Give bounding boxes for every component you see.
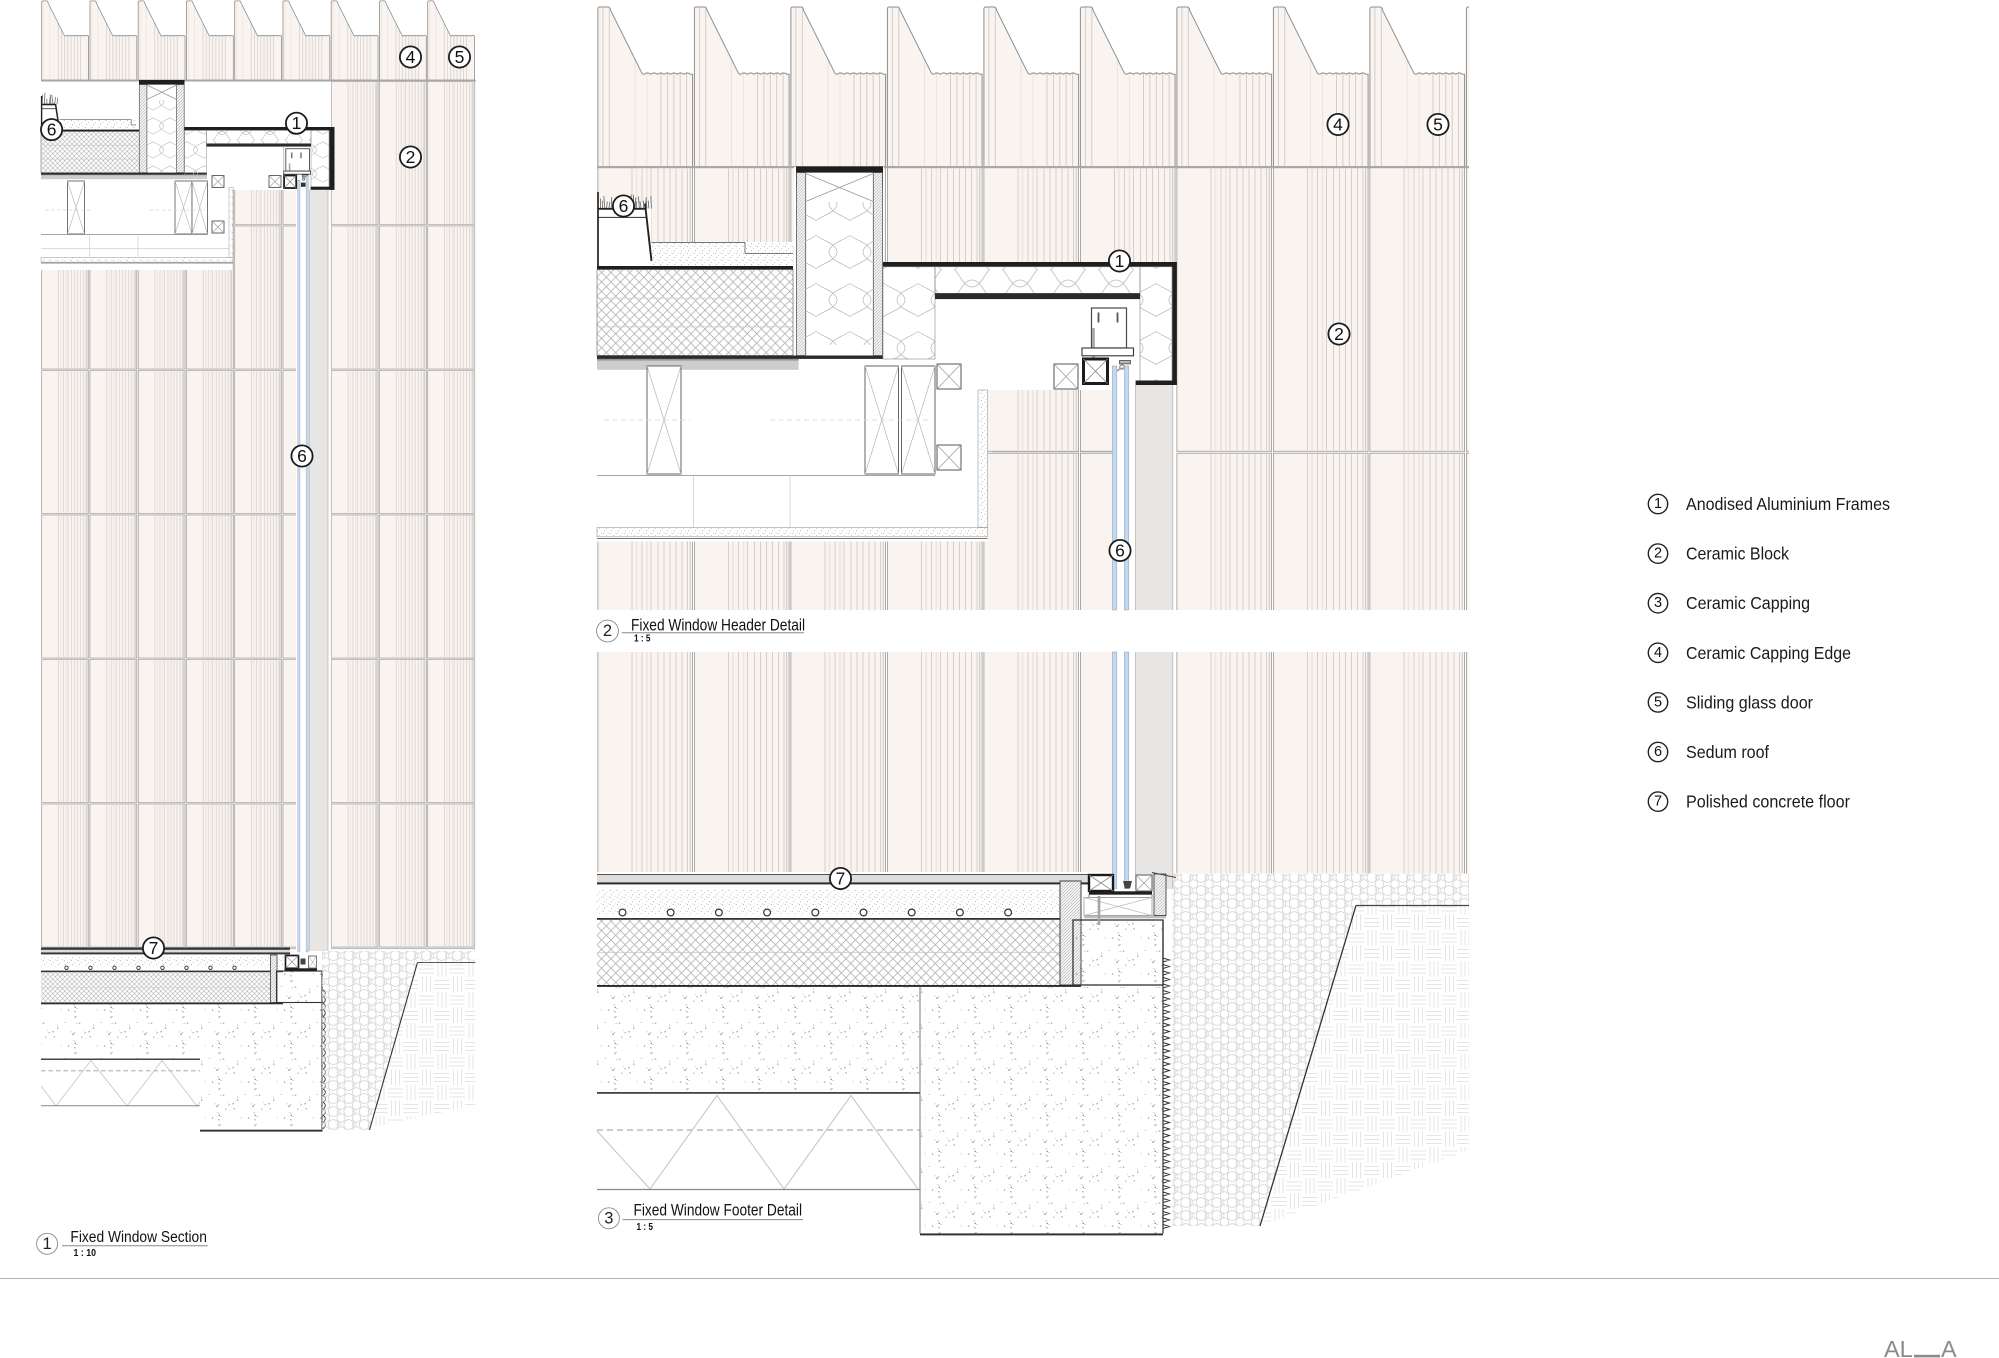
svg-text:7: 7 [1654, 794, 1662, 810]
svg-text:1: 1 [43, 1235, 52, 1253]
svg-text:1 : 5: 1 : 5 [637, 1221, 654, 1233]
svg-text:2: 2 [406, 147, 416, 167]
svg-text:3: 3 [604, 1209, 613, 1227]
svg-text:1: 1 [1115, 251, 1125, 271]
svg-text:7: 7 [836, 869, 846, 889]
svg-text:Ceramic Block: Ceramic Block [1686, 544, 1789, 564]
svg-text:Sedum roof: Sedum roof [1686, 742, 1769, 762]
svg-text:1 : 10: 1 : 10 [74, 1247, 97, 1259]
svg-text:6: 6 [1654, 744, 1662, 760]
svg-text:Fixed Window Footer Detail: Fixed Window Footer Detail [634, 1200, 803, 1219]
svg-text:1: 1 [1654, 496, 1662, 512]
svg-text:6: 6 [47, 120, 57, 140]
svg-text:4: 4 [1333, 115, 1343, 135]
svg-text:3: 3 [1654, 595, 1662, 611]
svg-text:Fixed Window Section: Fixed Window Section [70, 1229, 207, 1246]
svg-text:5: 5 [455, 47, 465, 67]
svg-text:Anodised Aluminium Frames: Anodised Aluminium Frames [1686, 494, 1890, 514]
svg-text:4: 4 [1654, 645, 1662, 661]
svg-text:2: 2 [603, 622, 612, 640]
svg-text:2: 2 [1654, 546, 1662, 562]
svg-text:Polished concrete floor: Polished concrete floor [1686, 792, 1850, 812]
svg-text:6: 6 [297, 446, 307, 466]
svg-text:Fixed Window Header Detail: Fixed Window Header Detail [631, 615, 805, 634]
svg-text:5: 5 [1433, 115, 1443, 135]
svg-text:6: 6 [619, 196, 629, 216]
svg-text:1: 1 [292, 113, 302, 133]
svg-text:5: 5 [1654, 694, 1662, 710]
svg-text:Ceramic Capping Edge: Ceramic Capping Edge [1686, 643, 1851, 663]
svg-text:Ceramic Capping: Ceramic Capping [1686, 593, 1810, 613]
svg-text:1 : 5: 1 : 5 [634, 633, 651, 645]
svg-text:A: A [1941, 1336, 1957, 1358]
svg-text:4: 4 [406, 47, 416, 67]
svg-text:Sliding glass door: Sliding glass door [1686, 692, 1813, 712]
svg-text:6: 6 [1115, 541, 1125, 561]
svg-text:AL: AL [1884, 1336, 1913, 1358]
svg-text:7: 7 [149, 938, 159, 958]
svg-text:2: 2 [1334, 324, 1344, 344]
